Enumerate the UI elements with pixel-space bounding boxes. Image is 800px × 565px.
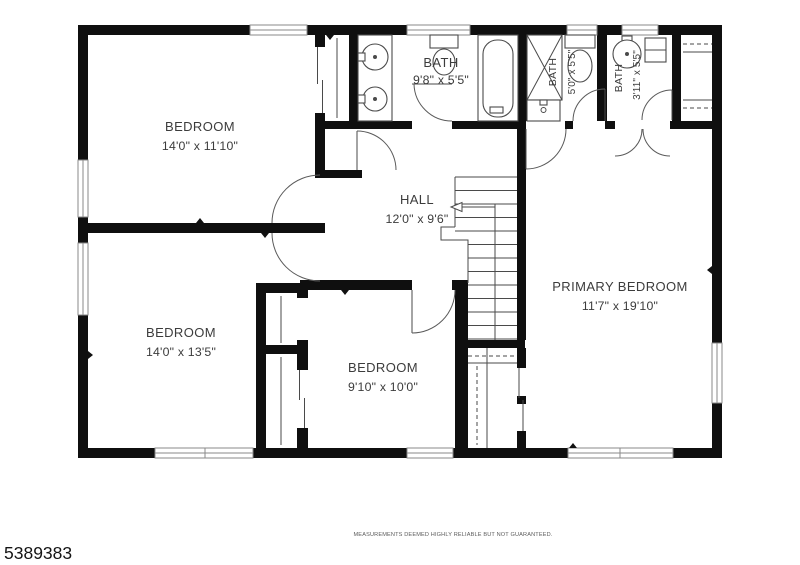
door-swing xyxy=(272,175,320,223)
double-door-swing xyxy=(615,129,670,156)
door-swing xyxy=(412,290,455,333)
window xyxy=(567,25,597,35)
room-dims-bath-small: 3'11" x 5'5" xyxy=(632,50,643,100)
room-label-bedroom-bottom-middle: BEDROOM xyxy=(348,360,418,375)
window xyxy=(712,343,722,403)
door-swing xyxy=(412,84,452,121)
room-label-bedroom-top-left: BEDROOM xyxy=(165,119,235,134)
room-dims-primary-bedroom: 11'7" x 19'10" xyxy=(582,299,658,313)
room-dims-hall: 12'0" x 9'6" xyxy=(385,212,448,226)
window xyxy=(78,160,88,217)
linen-closet xyxy=(357,131,396,170)
window xyxy=(78,243,88,315)
window xyxy=(622,25,658,35)
under-stair-closet xyxy=(468,348,523,448)
room-dims-bath-middle: 5'0" x 5'5" xyxy=(567,49,578,94)
door-swing xyxy=(526,129,566,169)
primary-closet-top-right xyxy=(683,44,712,108)
window xyxy=(250,25,307,35)
room-label-bedroom-bottom-left: BEDROOM xyxy=(146,325,216,340)
room-label-hall: HALL xyxy=(400,192,434,207)
room-label-bath-main: BATH xyxy=(423,55,458,70)
window xyxy=(407,448,453,458)
window xyxy=(568,448,673,458)
window xyxy=(155,448,253,458)
door-swing xyxy=(642,90,672,120)
listing-id: 5389383 xyxy=(4,543,72,563)
room-dims-bedroom-top-left: 14'0" x 11'10" xyxy=(162,139,238,153)
bedroom-closets-middle xyxy=(281,296,305,445)
floor-plan-page: BEDROOM 14'0" x 11'10" BATH 9'8" x 5'5" … xyxy=(0,0,800,565)
room-label-bath-middle: BATH xyxy=(547,58,559,86)
floor-plan-canvas: BEDROOM 14'0" x 11'10" BATH 9'8" x 5'5" … xyxy=(0,0,800,565)
room-dims-bedroom-bottom-left: 14'0" x 13'5" xyxy=(146,345,216,359)
room-label-bath-small: BATH xyxy=(613,64,625,92)
cabinet xyxy=(645,38,666,62)
room-label-primary-bedroom: PRIMARY BEDROOM xyxy=(552,279,688,294)
double-vanity xyxy=(358,35,392,121)
disclaimer-text: MEASUREMENTS DEEMED HIGHLY RELIABLE BUT … xyxy=(354,532,553,538)
bath-middle-fixtures xyxy=(527,35,595,121)
bathtub xyxy=(478,35,518,121)
door-swing xyxy=(272,233,320,281)
vanity-sink xyxy=(527,100,560,121)
room-dims-bath-main: 9'8" x 5'5" xyxy=(413,73,469,87)
room-dims-bedroom-bottom-middle: 9'10" x 10'0" xyxy=(348,380,418,394)
window xyxy=(407,25,470,35)
bedroom1-closet xyxy=(318,38,338,118)
staircase xyxy=(441,177,517,340)
